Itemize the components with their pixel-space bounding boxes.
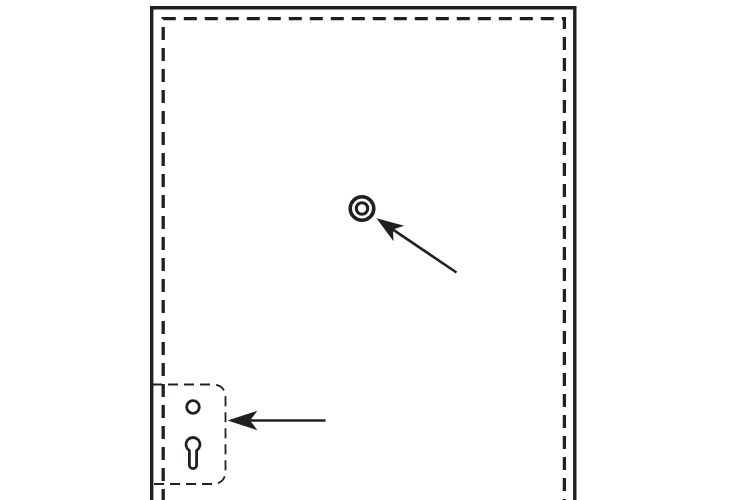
technical-illustration — [0, 0, 730, 500]
diagram-canvas — [0, 0, 730, 500]
diagram-background — [0, 0, 730, 500]
